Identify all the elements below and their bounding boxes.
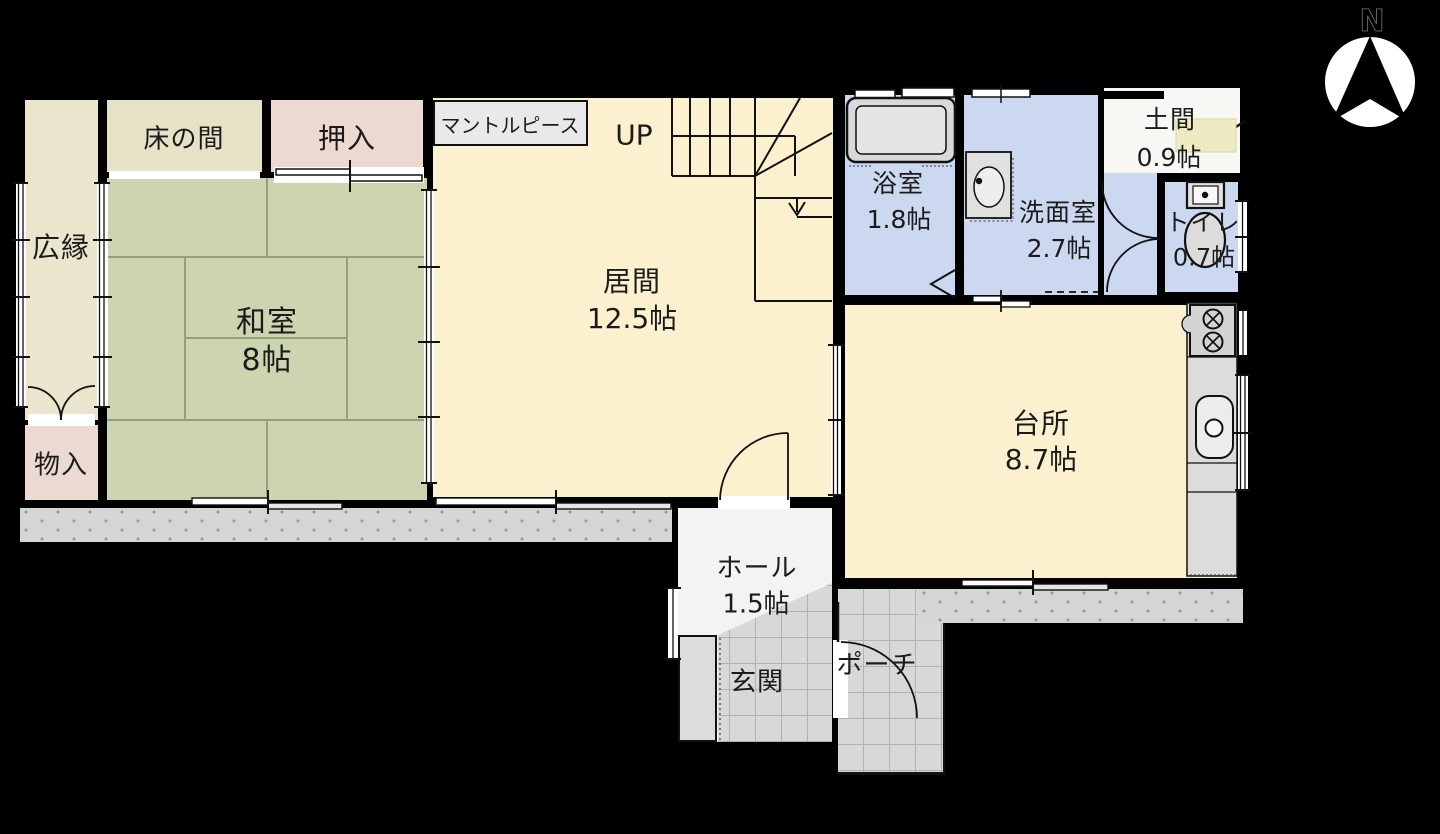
label-doma-size: 0.9帖 bbox=[1137, 138, 1202, 174]
label-senmenshitsu: 洗面室 bbox=[1019, 193, 1097, 229]
passage-doma bbox=[1104, 173, 1157, 295]
label-mantelpiece: マントルピース bbox=[441, 110, 580, 139]
label-toire-size: 0.7帖 bbox=[1173, 238, 1235, 273]
label-porch: ポーチ bbox=[836, 645, 917, 682]
deck-strip-east bbox=[918, 589, 1243, 623]
label-up: UP bbox=[615, 119, 652, 152]
label-daidokoro-size: 8.7帖 bbox=[1005, 438, 1078, 478]
label-monoire: 物入 bbox=[34, 445, 88, 482]
label-ima: 居間 bbox=[603, 260, 661, 300]
shoe-cabinet bbox=[678, 635, 717, 742]
label-ima-size: 12.5帖 bbox=[587, 297, 677, 337]
compass-circle bbox=[1321, 33, 1419, 131]
label-hall: ホール bbox=[716, 548, 797, 585]
compass-n-label: N bbox=[1359, 4, 1384, 39]
floor-plan: N 床の間 押入 広縁 和室 8帖 物入 マントルピース UP 居間 12.5帖… bbox=[0, 0, 1440, 834]
label-doma: 土間 bbox=[1144, 100, 1196, 136]
label-senmenshitsu-size: 2.7帖 bbox=[1027, 229, 1092, 265]
label-oshiire: 押入 bbox=[318, 117, 376, 157]
label-yokushitsu-size: 1.8帖 bbox=[867, 200, 932, 236]
label-genkan: 玄関 bbox=[730, 662, 784, 699]
label-yokushitsu: 浴室 bbox=[872, 164, 924, 200]
compass: N bbox=[1321, 4, 1419, 131]
north-arrow-icon bbox=[1332, 36, 1407, 121]
label-hall-size: 1.5帖 bbox=[722, 584, 789, 621]
label-daidokoro: 台所 bbox=[1012, 402, 1070, 442]
label-washitsu-size: 8帖 bbox=[241, 335, 292, 379]
kitchen-counter bbox=[1187, 303, 1237, 576]
label-tokonoma: 床の間 bbox=[143, 119, 224, 156]
deck-strip-south bbox=[20, 508, 672, 542]
label-toire: トイレ bbox=[1166, 203, 1241, 238]
label-hiroen: 広縁 bbox=[32, 226, 90, 266]
